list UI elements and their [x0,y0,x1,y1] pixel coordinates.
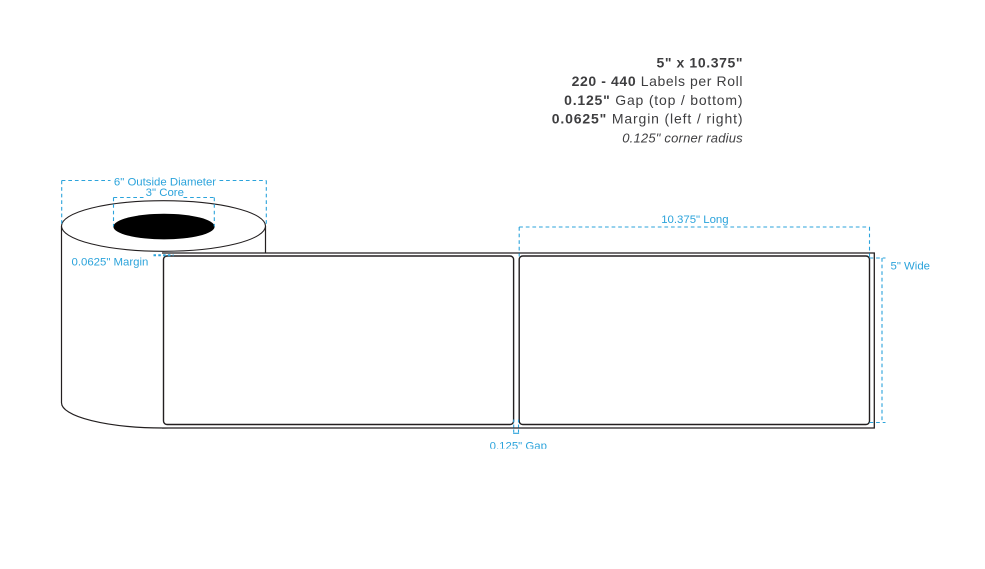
svg-text:0.125" corner radius: 0.125" corner radius [622,130,743,145]
svg-text:10.375" Long: 10.375" Long [661,214,728,226]
svg-text:3" Core: 3" Core [146,187,184,199]
svg-text:0.125" Gap (top / bottom): 0.125" Gap (top / bottom) [564,92,743,108]
svg-text:0.0625" Margin: 0.0625" Margin [72,257,149,269]
svg-text:220 - 440 Labels per Roll: 220 - 440 Labels per Roll [572,73,743,89]
svg-text:5" Wide: 5" Wide [891,260,931,272]
svg-text:0.0625" Margin (left / right): 0.0625" Margin (left / right) [552,111,744,127]
svg-text:5" x 10.375": 5" x 10.375" [656,55,743,71]
